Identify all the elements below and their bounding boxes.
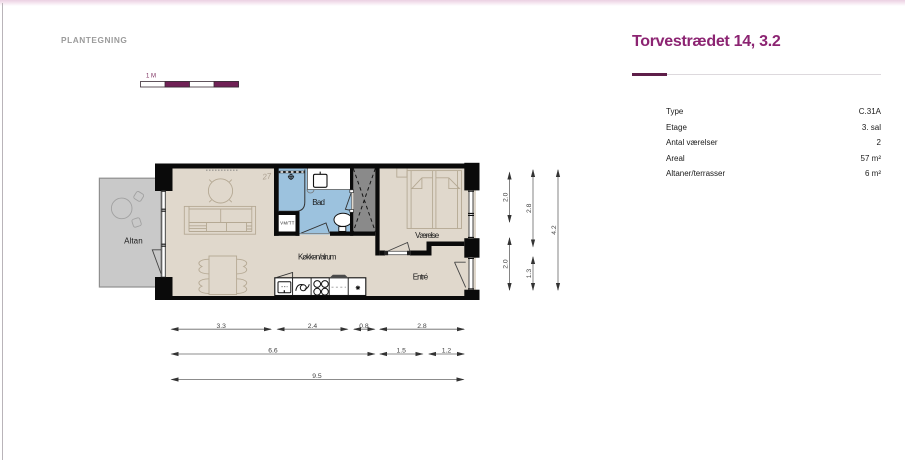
svg-text:2.4: 2.4: [308, 323, 318, 330]
svg-text:4.2: 4.2: [551, 225, 558, 235]
svg-text:Entré: Entré: [413, 273, 429, 282]
svg-text:Køkken/alrum: Køkken/alrum: [298, 253, 337, 262]
svg-text:0.8: 0.8: [359, 323, 369, 330]
svg-text:VM/TT: VM/TT: [280, 221, 294, 226]
svg-text:1.2: 1.2: [442, 348, 452, 355]
svg-text:2.8: 2.8: [526, 203, 533, 213]
svg-text:6.6: 6.6: [268, 348, 278, 355]
svg-text:1.3: 1.3: [526, 269, 533, 279]
svg-text:Altan: Altan: [124, 236, 143, 245]
svg-text:2.0: 2.0: [503, 192, 510, 202]
svg-text:3.3: 3.3: [217, 323, 227, 330]
svg-text:9.5: 9.5: [312, 373, 322, 380]
svg-text:1.5: 1.5: [397, 348, 407, 355]
svg-text:27: 27: [261, 171, 273, 181]
svg-text:1 M: 1 M: [146, 74, 156, 80]
svg-text:Bad: Bad: [312, 198, 325, 207]
svg-text:2.0: 2.0: [503, 259, 510, 269]
svg-text:2.8: 2.8: [417, 323, 427, 330]
svg-text:Værelse: Værelse: [415, 231, 440, 240]
